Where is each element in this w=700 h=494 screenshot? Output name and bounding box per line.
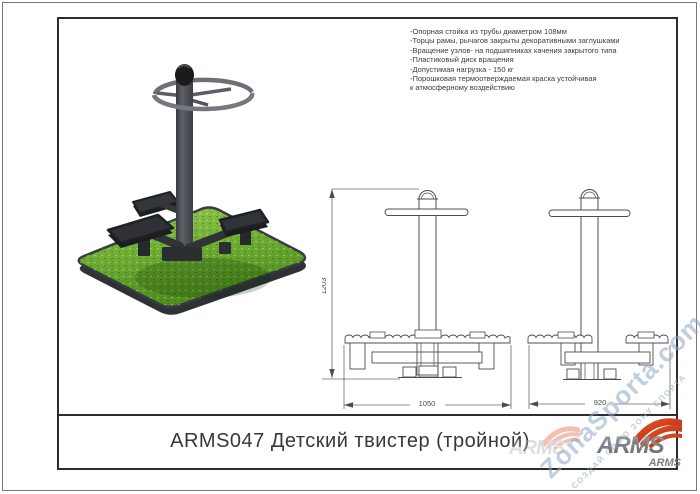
base-housing bbox=[162, 247, 202, 261]
spec-line: -Опорная стойка из трубы диаметром 108мм bbox=[410, 27, 678, 36]
spec-sheet-page: -Опорная стойка из трубы диаметром 108мм… bbox=[0, 0, 700, 494]
dim-arrow-up bbox=[329, 189, 334, 198]
dim-arrow-left bbox=[344, 402, 353, 407]
side-view-drawing: 920 bbox=[520, 183, 688, 413]
dim-arrow-right bbox=[502, 402, 511, 407]
spec-list: -Опорная стойка из трубы диаметром 108мм… bbox=[410, 27, 678, 93]
dim-arrow-left bbox=[529, 401, 538, 406]
dim-arrow-down bbox=[329, 369, 334, 378]
spec-line: к атмосферному воздействию bbox=[410, 83, 678, 92]
spec-line: -Вращение узлов- на подшипниках качения … bbox=[410, 46, 678, 55]
spec-line: -Порошковая термоотверждаемая краска уст… bbox=[410, 74, 678, 83]
dim-width-label: 1050 bbox=[419, 399, 436, 408]
base-bolt bbox=[219, 242, 231, 254]
pole bbox=[176, 76, 193, 256]
product-3d-render bbox=[58, 50, 330, 340]
arms-logo-subtext: ARMS bbox=[648, 457, 682, 467]
dim-height-label: 1203 bbox=[322, 278, 328, 295]
front-view-drawing: 1203 1050 bbox=[322, 183, 522, 413]
spec-line: -Пластиковый диск вращения bbox=[410, 55, 678, 64]
dim-height-lines bbox=[322, 189, 419, 379]
spec-line: -Допустимая нагрузка - 150 кг bbox=[410, 65, 678, 74]
spec-line: -Торцы рамы, рычагов закрыты декоративны… bbox=[410, 36, 678, 45]
grass-shadow bbox=[135, 258, 271, 298]
